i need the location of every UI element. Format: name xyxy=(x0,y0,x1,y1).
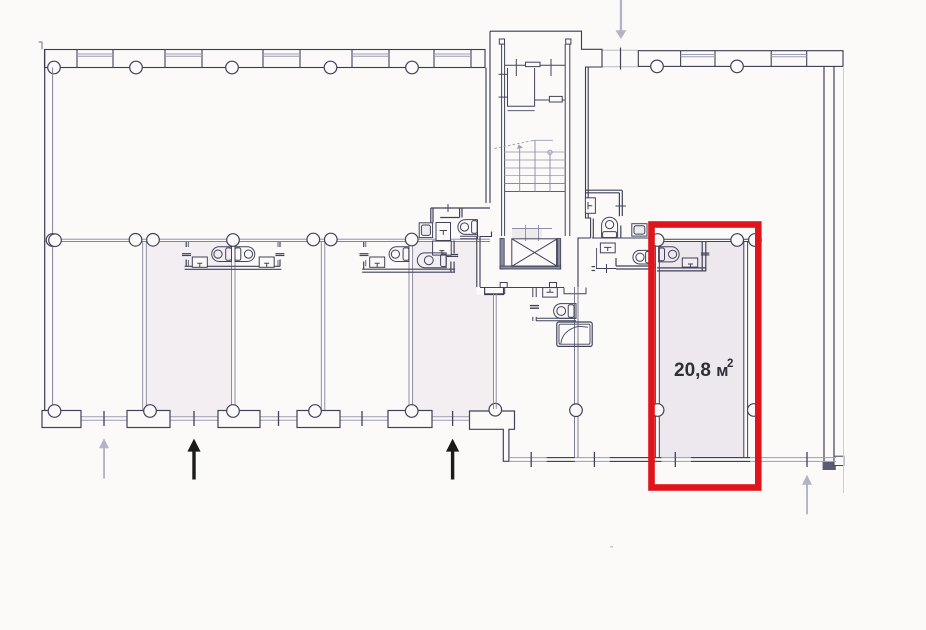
svg-text:2: 2 xyxy=(727,358,733,370)
svg-text:20,8 м: 20,8 м xyxy=(674,360,728,381)
